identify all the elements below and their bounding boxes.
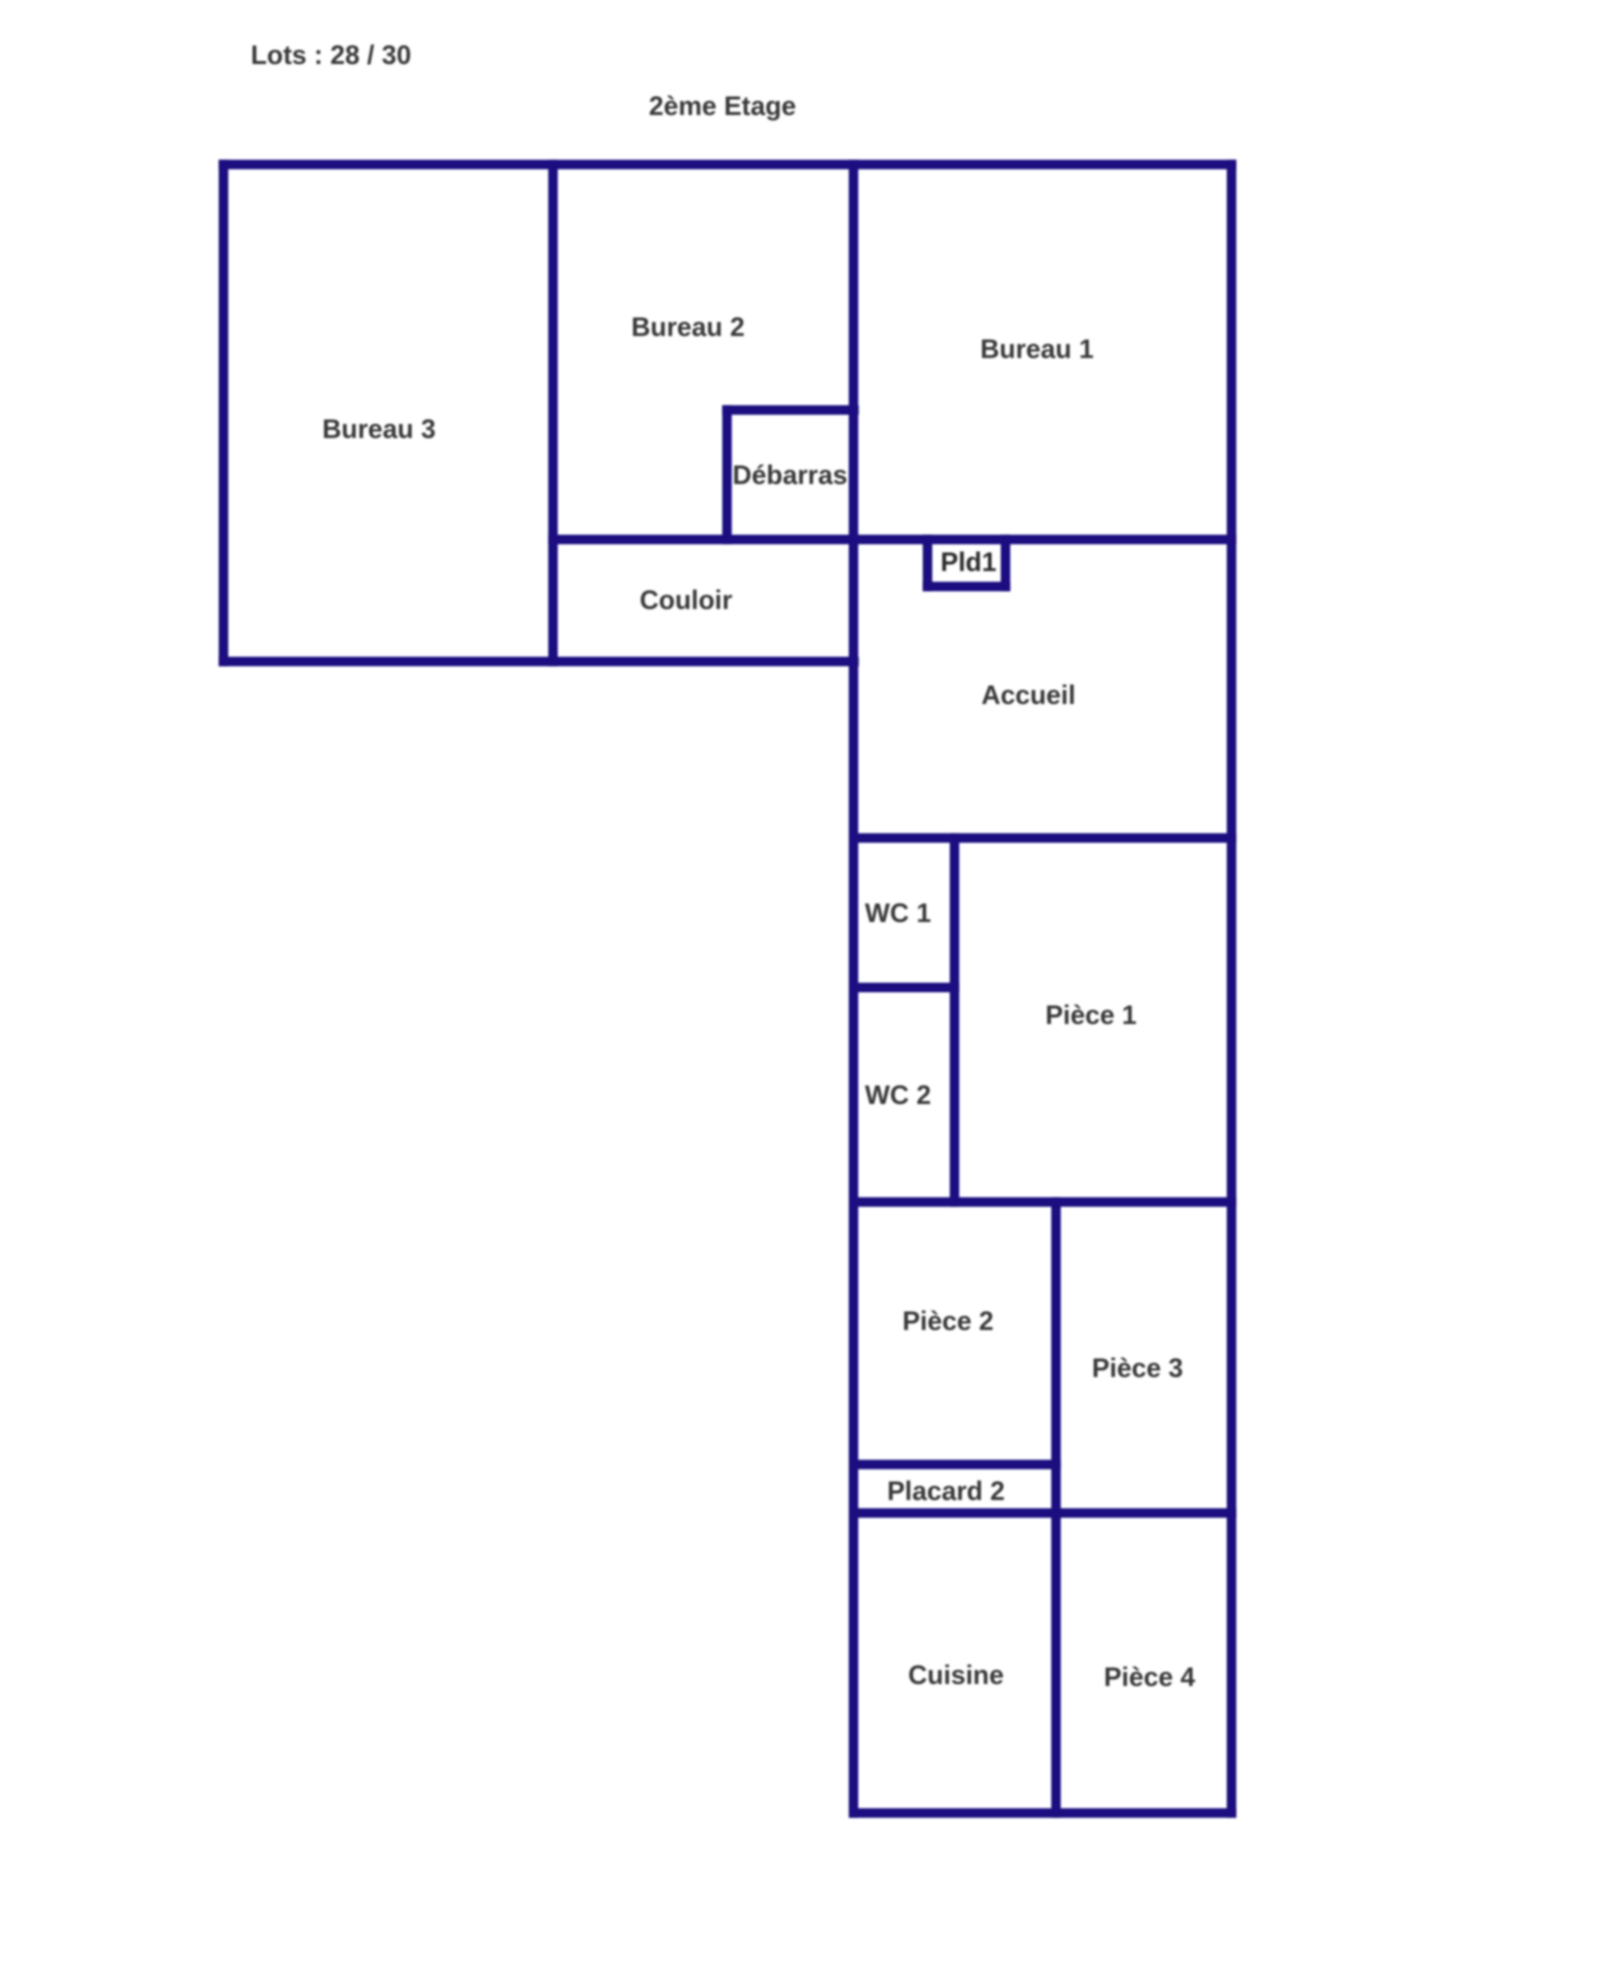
svg-text:WC 2: WC 2: [865, 1080, 931, 1110]
svg-text:Pièce 3: Pièce 3: [1092, 1353, 1183, 1383]
svg-text:Pièce 1: Pièce 1: [1045, 1000, 1136, 1030]
svg-text:Placard 2: Placard 2: [887, 1476, 1005, 1506]
svg-text:Accueil: Accueil: [981, 680, 1075, 710]
svg-text:Pld1: Pld1: [941, 547, 997, 577]
svg-text:Débarras: Débarras: [733, 460, 848, 490]
svg-text:2ème Etage: 2ème Etage: [649, 91, 796, 121]
svg-text:Bureau 3: Bureau 3: [322, 414, 435, 444]
svg-text:Bureau 1: Bureau 1: [980, 334, 1093, 364]
svg-text:Lots : 28 / 30: Lots : 28 / 30: [251, 40, 412, 70]
svg-text:Cuisine: Cuisine: [908, 1660, 1004, 1690]
svg-text:Bureau 2: Bureau 2: [631, 312, 744, 342]
svg-text:Pièce 4: Pièce 4: [1104, 1662, 1196, 1692]
svg-text:Couloir: Couloir: [640, 585, 733, 615]
svg-text:WC 1: WC 1: [865, 898, 931, 928]
svg-text:Pièce 2: Pièce 2: [902, 1306, 993, 1336]
